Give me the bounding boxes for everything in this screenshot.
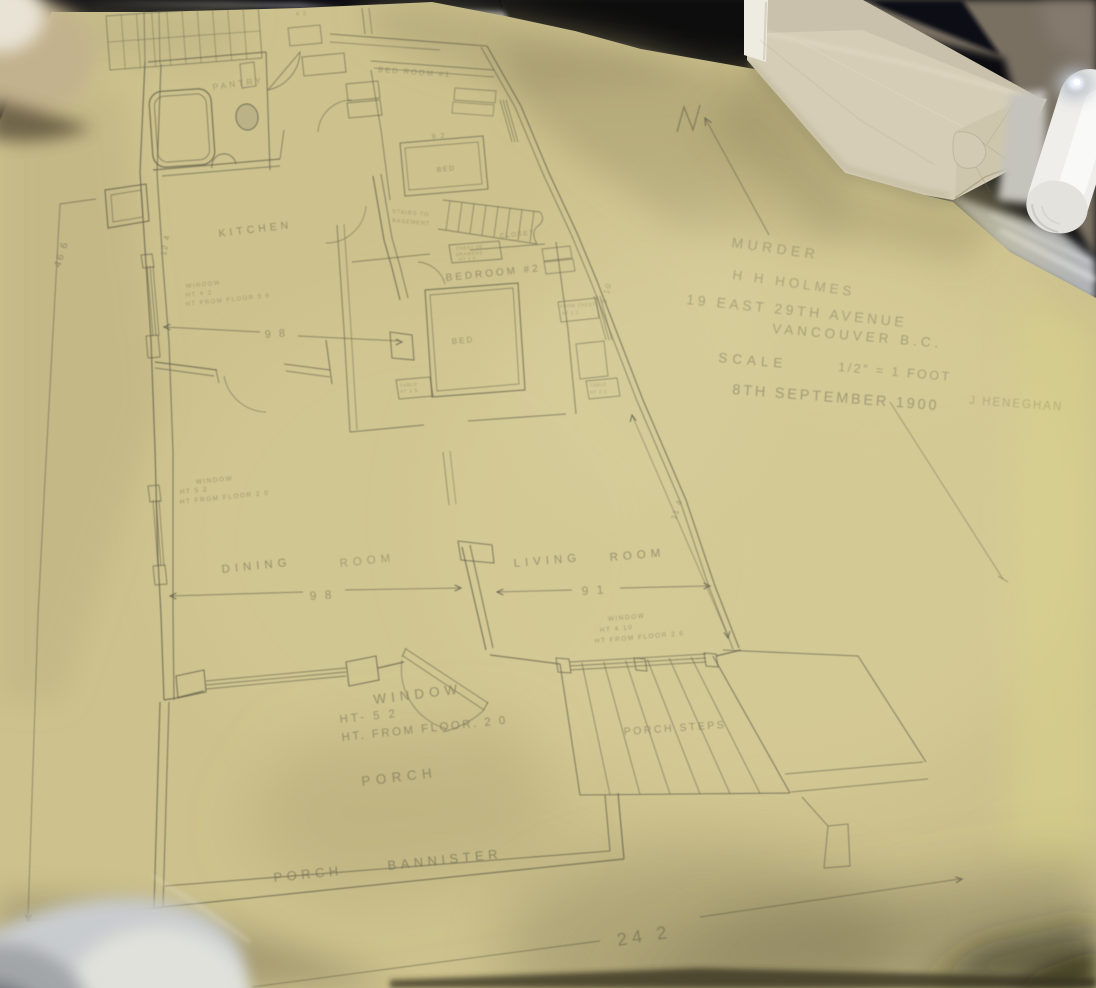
svg-text:9 8: 9 8 — [264, 327, 288, 341]
svg-text:9 1: 9 1 — [581, 582, 606, 598]
svg-text:9 2: 9 2 — [431, 133, 446, 141]
svg-text:9 8: 9 8 — [309, 587, 334, 603]
svg-text:4 2: 4 2 — [296, 11, 308, 18]
